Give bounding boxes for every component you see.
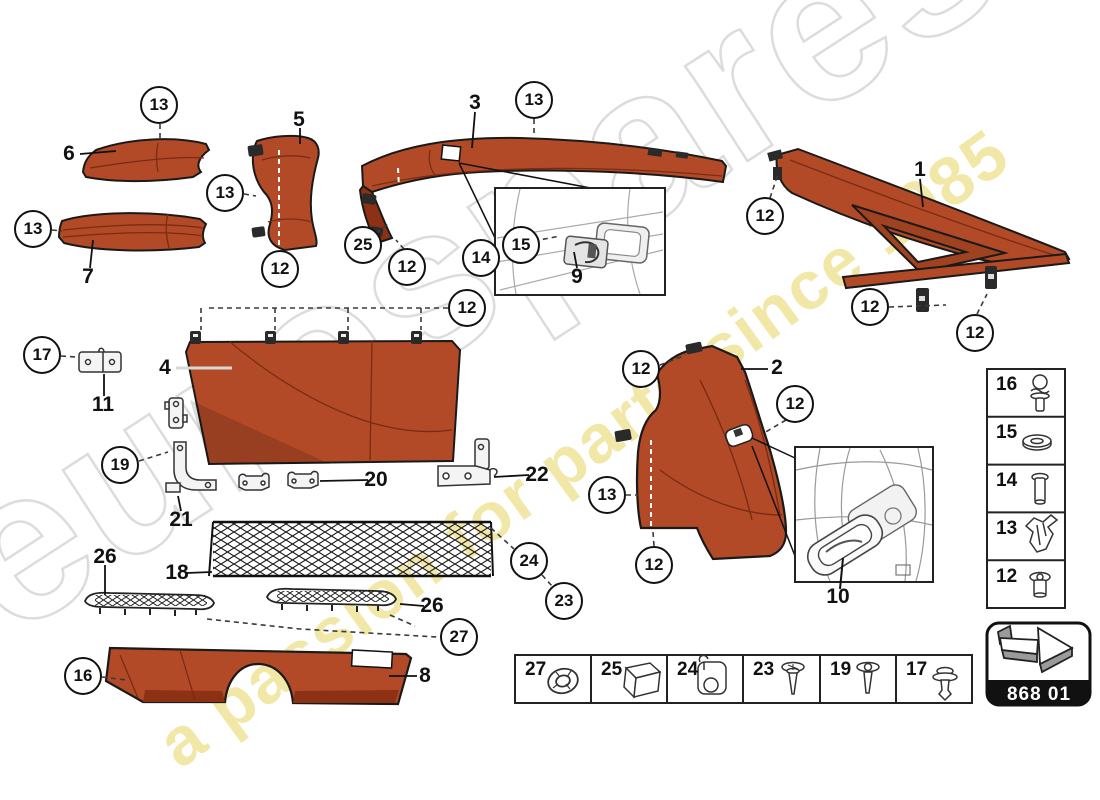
- fastener-label-12[interactable]: 12: [996, 566, 1017, 588]
- part-label-20[interactable]: 20: [364, 468, 387, 492]
- part-label-4[interactable]: 4: [159, 356, 171, 380]
- part-7-drawing: [59, 213, 206, 250]
- legend-label-24[interactable]: 24: [677, 659, 698, 681]
- catalog-code[interactable]: 868 01: [988, 684, 1090, 706]
- part-label-8[interactable]: 8: [419, 664, 431, 688]
- part-label-21[interactable]: 21: [169, 508, 192, 532]
- part-label-18[interactable]: 18: [165, 561, 188, 585]
- callout-14[interactable]: 14: [462, 239, 500, 277]
- callout-12-a[interactable]: 12: [261, 250, 299, 288]
- part-6-drawing: [83, 139, 209, 181]
- callout-19[interactable]: 19: [101, 446, 139, 484]
- callout-12-g[interactable]: 12: [622, 350, 660, 388]
- callout-13-a[interactable]: 13: [140, 86, 178, 124]
- part-5-drawing: [247, 136, 318, 250]
- callout-13-d[interactable]: 13: [515, 81, 553, 119]
- bolt-icon: [1032, 474, 1048, 505]
- part-label-1[interactable]: 1: [914, 158, 926, 182]
- callout-12-d[interactable]: 12: [851, 288, 889, 326]
- part-label-7[interactable]: 7: [82, 265, 94, 289]
- foam-block-icon: [624, 663, 660, 697]
- washer-icon: [1023, 435, 1051, 450]
- callout-15[interactable]: 15: [502, 226, 540, 264]
- callout-24[interactable]: 24: [510, 542, 548, 580]
- legend-row-box: [515, 655, 972, 703]
- part-label-5[interactable]: 5: [293, 108, 305, 132]
- parts-diagram-page: eurospares a passion for parts since 198…: [0, 0, 1100, 800]
- legend-label-17[interactable]: 17: [906, 659, 927, 681]
- inset-box-detail-10: [752, 438, 933, 589]
- part-4-drawing: [186, 331, 460, 464]
- callout-23[interactable]: 23: [545, 582, 583, 620]
- callout-12-b[interactable]: 12: [388, 248, 426, 286]
- part-label-11[interactable]: 11: [92, 393, 114, 417]
- part-label-6[interactable]: 6: [63, 142, 75, 166]
- part-label-10[interactable]: 10: [826, 585, 849, 609]
- callout-12-f[interactable]: 12: [448, 289, 486, 327]
- bracket-vertical-drawing: [165, 398, 187, 428]
- legend-label-19[interactable]: 19: [830, 659, 851, 681]
- part-label-26-left[interactable]: 26: [93, 545, 116, 569]
- callout-13-e[interactable]: 13: [588, 476, 626, 514]
- legend-label-25[interactable]: 25: [601, 659, 622, 681]
- bracket-11-drawing: [79, 348, 121, 372]
- callout-12-c[interactable]: 12: [746, 197, 784, 235]
- part-label-2[interactable]: 2: [771, 356, 783, 380]
- fastener-label-16[interactable]: 16: [996, 374, 1017, 396]
- fastener-label-14[interactable]: 14: [996, 470, 1017, 492]
- callout-13-b[interactable]: 13: [14, 210, 52, 248]
- callout-12-e[interactable]: 12: [956, 314, 994, 352]
- callout-27[interactable]: 27: [440, 618, 478, 656]
- callout-13-c[interactable]: 13: [206, 174, 244, 212]
- fastener-label-15[interactable]: 15: [996, 422, 1017, 444]
- legend-label-27[interactable]: 27: [525, 659, 546, 681]
- fastener-label-13[interactable]: 13: [996, 518, 1017, 540]
- part-label-26-right[interactable]: 26: [420, 594, 443, 618]
- luggage-net-drawing: [209, 522, 493, 576]
- part-label-9[interactable]: 9: [571, 265, 583, 289]
- part-label-22[interactable]: 22: [525, 463, 548, 487]
- callout-16[interactable]: 16: [64, 657, 102, 695]
- callout-17[interactable]: 17: [23, 336, 61, 374]
- callout-25[interactable]: 25: [344, 226, 382, 264]
- part-label-3[interactable]: 3: [469, 91, 481, 115]
- bracket-20a-drawing: [239, 473, 269, 490]
- bracket-20b-drawing: [288, 471, 318, 488]
- callout-12-i[interactable]: 12: [635, 546, 673, 584]
- callout-12-h[interactable]: 12: [776, 385, 814, 423]
- legend-label-23[interactable]: 23: [753, 659, 774, 681]
